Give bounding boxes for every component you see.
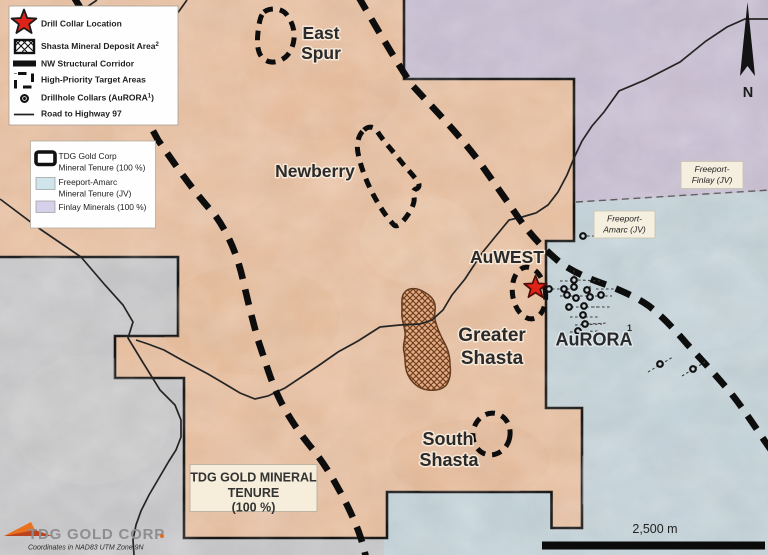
svg-text:Coordinates in NAD83 UTM Zone: Coordinates in NAD83 UTM Zone 9N	[28, 545, 144, 552]
svg-text:Finlay Minerals (100 %): Finlay Minerals (100 %)	[59, 202, 147, 212]
svg-text:Shasta: Shasta	[461, 348, 524, 369]
svg-text:AuWEST: AuWEST	[470, 247, 544, 267]
svg-text:(100 %): (100 %)	[232, 501, 276, 515]
svg-text:Greater: Greater	[458, 325, 526, 346]
svg-text:TDG Gold Corp: TDG Gold Corp	[59, 151, 118, 161]
svg-text:Freeport-: Freeport-	[695, 164, 730, 174]
svg-text:Newberry: Newberry	[275, 161, 355, 181]
svg-text:TDG GOLD MINERAL: TDG GOLD MINERAL	[190, 471, 317, 485]
svg-text:East: East	[303, 23, 340, 43]
svg-text:N: N	[743, 85, 753, 101]
svg-text:TDG GOLD CORP: TDG GOLD CORP	[28, 526, 165, 543]
svg-text:NW Structural Corridor: NW Structural Corridor	[41, 59, 135, 69]
svg-text:Drill Collar Location: Drill Collar Location	[41, 19, 122, 29]
svg-text:Amarc (JV): Amarc (JV)	[602, 225, 646, 235]
svg-text:Shasta Mineral Deposit Area2: Shasta Mineral Deposit Area2	[41, 41, 159, 51]
svg-text:High-Priority Target Areas: High-Priority Target Areas	[41, 75, 146, 85]
svg-text:South: South	[423, 429, 474, 449]
svg-text:Freeport-: Freeport-	[607, 214, 642, 224]
svg-text:2,500 m: 2,500 m	[632, 522, 677, 536]
svg-text:Mineral Tenure (JV): Mineral Tenure (JV)	[59, 189, 132, 199]
svg-text:Freeport-Amarc: Freeport-Amarc	[59, 177, 118, 187]
svg-text:Shasta: Shasta	[419, 450, 479, 470]
svg-text:Finlay (JV): Finlay (JV)	[692, 175, 733, 185]
svg-text:Road to Highway 97: Road to Highway 97	[41, 109, 122, 119]
svg-text:Spur: Spur	[301, 43, 341, 63]
svg-text:AuRORA: AuRORA	[556, 330, 633, 350]
svg-text:1: 1	[627, 323, 632, 333]
svg-text:Drillhole Collars (AuRORA1): Drillhole Collars (AuRORA1)	[41, 93, 154, 103]
svg-text:Mineral Tenure (100 %): Mineral Tenure (100 %)	[59, 163, 146, 173]
svg-text:TENURE: TENURE	[228, 486, 279, 500]
